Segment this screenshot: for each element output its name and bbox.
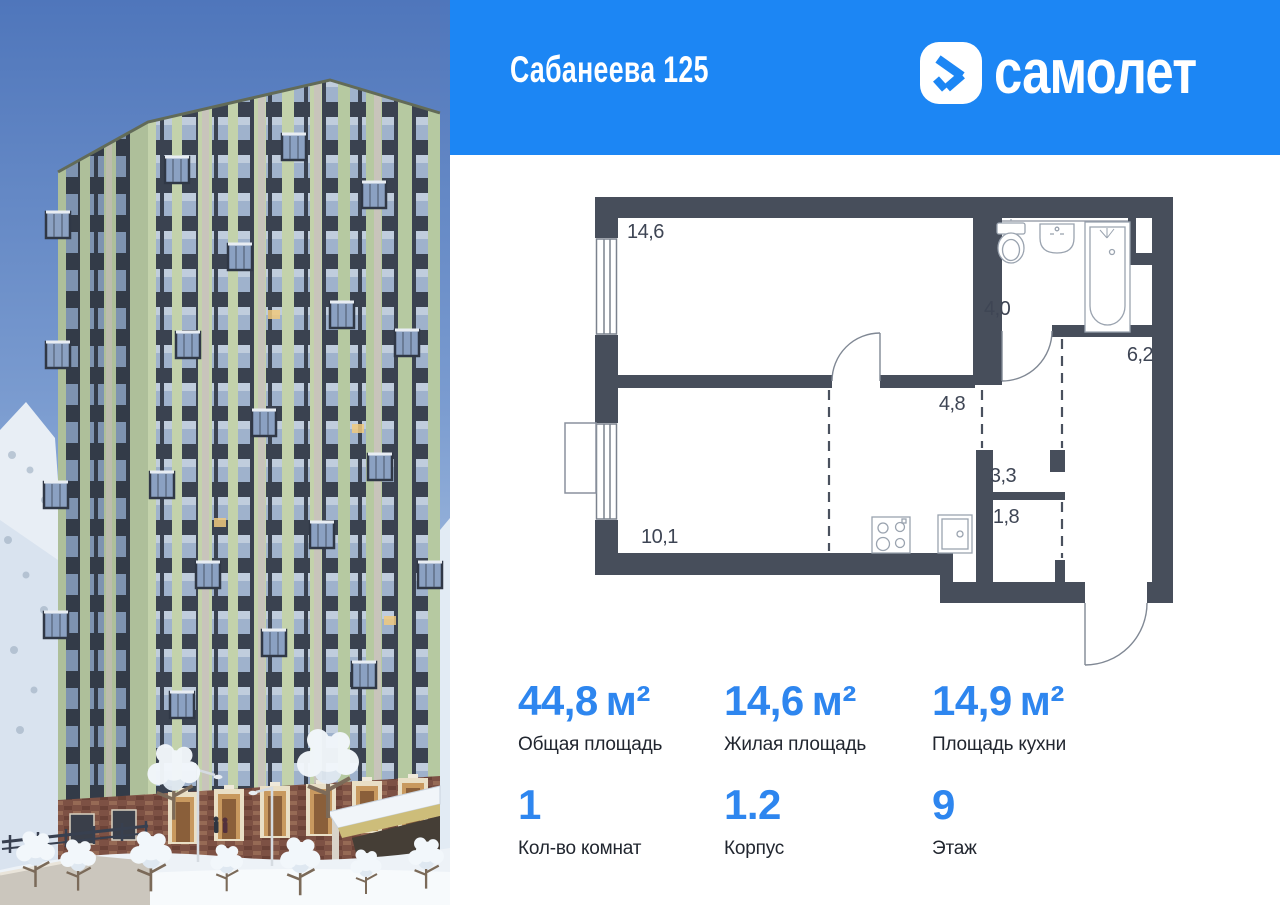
kitchen-sink-icon xyxy=(938,515,972,553)
samolet-logo-icon xyxy=(920,42,982,104)
room-area-label-corridor: 4,8 xyxy=(939,393,966,415)
stat-value: 1 xyxy=(518,782,724,828)
windows xyxy=(565,221,1128,520)
room-area-label-bathroom: 4,0 xyxy=(984,298,1011,320)
toilet-icon xyxy=(997,219,1025,263)
room-area-label-wardrobe: 1,8 xyxy=(993,506,1020,528)
room-area-label-hallway: 6,2 xyxy=(1127,344,1154,366)
stat-living-area: 14,6м² Жилая площадь xyxy=(724,678,930,756)
building-rendering xyxy=(0,0,450,905)
stat-label: Корпус xyxy=(724,838,930,860)
stat-label: Площадь кухни xyxy=(932,734,1138,756)
stat-building-number: 1.2 Корпус xyxy=(724,782,930,860)
page-title: Сабанеева 125 xyxy=(510,49,709,91)
building-photo xyxy=(0,0,450,905)
stove-icon xyxy=(872,517,910,553)
stat-kitchen-area: 14,9м² Площадь кухни xyxy=(932,678,1138,756)
kitchen-fixtures xyxy=(872,515,972,553)
stat-value: 14,9м² xyxy=(932,678,1138,724)
listing-header: Сабанеева 125 самолет xyxy=(450,0,1280,155)
stat-value: 44,8м² xyxy=(518,678,724,724)
samolet-logo: самолет xyxy=(920,41,1241,105)
balcony-outline xyxy=(565,423,596,493)
stat-value: 1.2 xyxy=(724,782,930,828)
sink-icon xyxy=(1040,224,1074,253)
stat-floor-number: 9 Этаж xyxy=(932,782,1138,860)
stat-value: 9 xyxy=(932,782,1138,828)
room-area-label-storage: 3,3 xyxy=(990,465,1017,487)
stat-label: Общая площадь xyxy=(518,734,724,756)
room-area-label-kitchen: 10,1 xyxy=(641,526,678,548)
stat-label: Кол-во комнат xyxy=(518,838,724,860)
bathroom-fixtures xyxy=(997,219,1130,332)
stat-total-area: 44,8м² Общая площадь xyxy=(518,678,724,756)
bathtub-icon xyxy=(1085,222,1130,332)
tower xyxy=(44,70,442,810)
room-area-label-living: 14,6 xyxy=(627,221,664,243)
floor-plan: 14,6 4,0 6,2 4,8 3,3 1,8 10,1 xyxy=(563,191,1183,671)
samolet-wordmark: самолет xyxy=(994,42,1196,104)
stat-label: Жилая площадь xyxy=(724,734,930,756)
stat-label: Этаж xyxy=(932,838,1138,860)
listing-panel: Сабанеева 125 самолет xyxy=(450,0,1280,905)
stat-value: 14,6м² xyxy=(724,678,930,724)
stat-rooms-count: 1 Кол-во комнат xyxy=(518,782,724,860)
page: Сабанеева 125 самолет xyxy=(0,0,1280,905)
